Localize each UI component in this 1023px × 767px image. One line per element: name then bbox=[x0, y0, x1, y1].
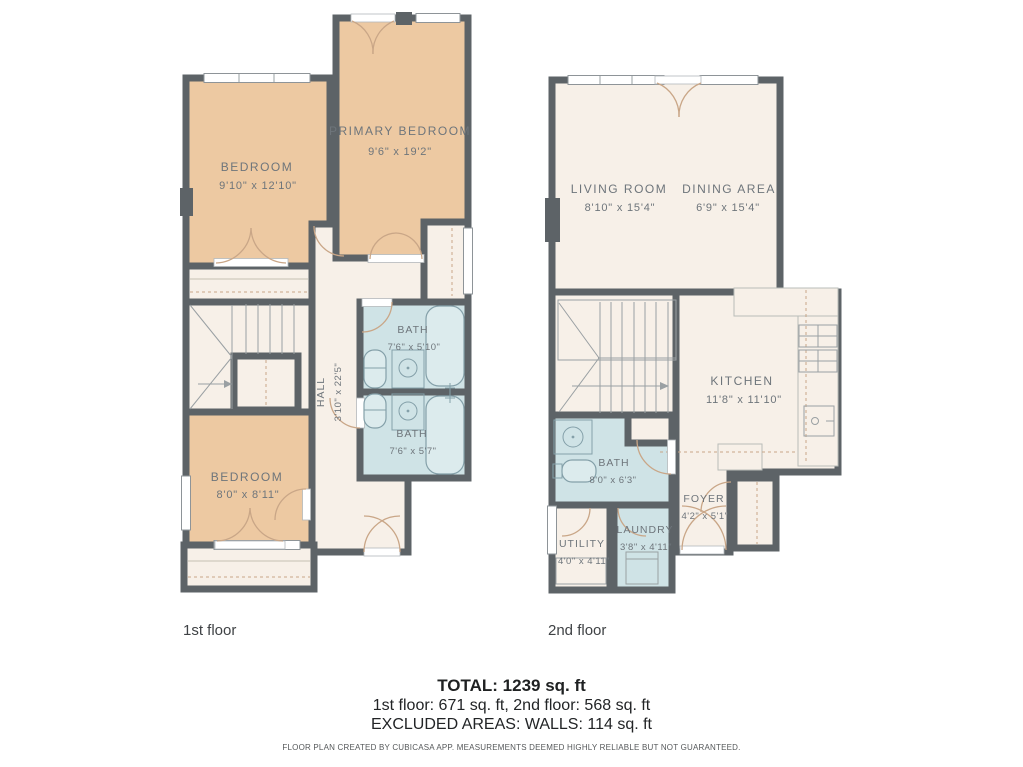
label-dining-area: DINING AREA bbox=[682, 182, 776, 196]
room-balcony bbox=[184, 545, 314, 589]
room-closet-primary bbox=[424, 222, 468, 302]
floor1-label: 1st floor bbox=[183, 622, 236, 639]
floor2-plan: LIVING ROOM 8'10" x 15'4" DINING AREA 6'… bbox=[545, 76, 838, 591]
label-bath-lower: BATH bbox=[396, 428, 427, 440]
window-dining-top bbox=[700, 76, 758, 85]
label-bedroom-bottom: BEDROOM bbox=[211, 470, 284, 484]
label-primary-bedroom: PRIMARY BEDROOM bbox=[329, 124, 471, 138]
wall-notch-primary-top bbox=[396, 12, 412, 25]
window-utility-west bbox=[548, 506, 557, 554]
room-foyer-closet bbox=[734, 478, 776, 548]
summary-total: TOTAL: 1239 sq. ft bbox=[0, 676, 1023, 696]
dims-kitchen: 11'8" x 11'10" bbox=[706, 394, 782, 406]
label-hall: HALL bbox=[315, 377, 327, 407]
wall-notch-left-f2 bbox=[545, 198, 560, 242]
window-primary-top bbox=[416, 14, 460, 23]
summary-excluded-areas: EXCLUDED AREAS: WALLS: 114 sq. ft bbox=[0, 715, 1023, 734]
dims-bath-f2: 8'0" x 6'3" bbox=[589, 475, 636, 486]
summary-floor-breakdown: 1st floor: 671 sq. ft, 2nd floor: 568 sq… bbox=[0, 696, 1023, 715]
label-utility: UTILITY bbox=[559, 538, 605, 550]
dims-bedroom-top: 9'10" x 12'10" bbox=[219, 180, 297, 192]
wall-notch-left bbox=[180, 188, 193, 216]
room-closet-under-stairs bbox=[234, 356, 298, 410]
toilet-icon bbox=[364, 394, 386, 428]
dims-primary-bedroom: 9'6" x 19'2" bbox=[368, 146, 432, 158]
disclaimer-text: FLOOR PLAN CREATED BY CUBICASA APP. MEAS… bbox=[0, 743, 1023, 752]
window-closet-east bbox=[464, 228, 473, 294]
floor-plans-canvas: BEDROOM 9'10" x 12'10" PRIMARY BEDROOM 9… bbox=[0, 0, 1023, 620]
dims-hall: 3'10" x 22'5" bbox=[333, 363, 344, 422]
floor1-plan: BEDROOM 9'10" x 12'10" PRIMARY BEDROOM 9… bbox=[180, 12, 473, 589]
dims-bath-upper: 7'6" x 5'10" bbox=[388, 342, 441, 353]
label-bath-f2: BATH bbox=[598, 457, 629, 469]
label-laundry: LAUNDRY bbox=[617, 524, 674, 536]
toilet-icon bbox=[364, 350, 386, 388]
summary-footer: TOTAL: 1239 sq. ft 1st floor: 671 sq. ft… bbox=[0, 676, 1023, 752]
room-wardrobe bbox=[186, 266, 312, 302]
dims-dining-area: 6'9" x 15'4" bbox=[696, 202, 760, 214]
dims-bath-lower: 7'6" x 5'7" bbox=[389, 446, 436, 457]
window-bedroom-top bbox=[204, 74, 310, 83]
dims-utility: 4'0" x 4'11" bbox=[558, 556, 610, 567]
room-bath-closet bbox=[628, 415, 672, 443]
label-kitchen: KITCHEN bbox=[710, 374, 773, 388]
label-bath-upper: BATH bbox=[397, 324, 428, 336]
dims-living-room: 8'10" x 15'4" bbox=[585, 202, 656, 214]
dims-bedroom-bottom: 8'0" x 8'11" bbox=[217, 489, 280, 501]
label-bedroom-top: BEDROOM bbox=[221, 160, 294, 174]
bathtub-icon bbox=[426, 396, 464, 474]
label-foyer: FOYER bbox=[683, 493, 724, 505]
floor1-rooms bbox=[180, 12, 468, 589]
label-living-room: LIVING ROOM bbox=[571, 182, 668, 196]
window-living-top bbox=[568, 76, 664, 85]
dims-foyer: 4'2" x 5'1" bbox=[681, 511, 728, 522]
floor2-label: 2nd floor bbox=[548, 622, 606, 639]
dims-laundry: 3'8" x 4'11" bbox=[620, 542, 672, 553]
floor-plan-page: { "floor1": { "label": "1st floor", "roo… bbox=[0, 0, 1023, 767]
window-bedroom-bottom-west bbox=[182, 476, 191, 530]
